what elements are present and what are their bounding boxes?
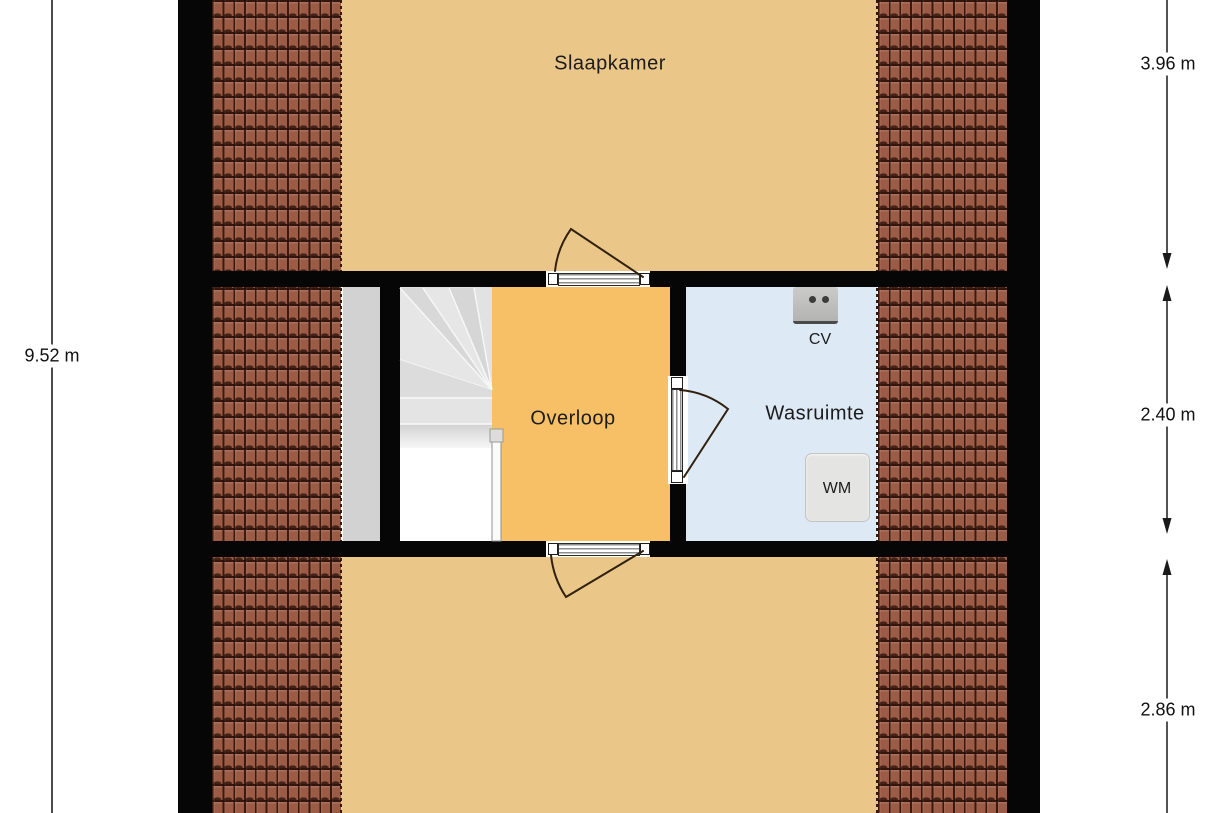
door-jamb (548, 273, 558, 285)
arrowhead-down-icon (1163, 253, 1172, 269)
door-jamb (640, 273, 650, 285)
door-leaf-bottom (558, 543, 640, 556)
room-label-overloop: Overloop (530, 408, 615, 431)
room-label-wasruimte: Wasruimte (765, 403, 864, 426)
dimension-label-bottom-section: 2.86 m (1135, 699, 1200, 722)
dimension-label-top-section: 3.96 m (1135, 53, 1200, 76)
arrowhead-down-icon (1163, 518, 1172, 534)
arrowhead-up-icon (1163, 559, 1172, 575)
door-jamb (671, 471, 683, 483)
landing-strip (343, 287, 380, 541)
room-bottom (341, 557, 878, 813)
stairs-area (400, 287, 492, 541)
cv-dot (809, 296, 816, 303)
door-leaf-wasruimte (671, 389, 683, 471)
door-leaf-slaapkamer (558, 273, 640, 286)
cv-dot (822, 296, 829, 303)
door-jamb (548, 543, 558, 555)
floorplan-canvas: Slaapkamer Overloop Wasruimte CV WM 9.52… (0, 0, 1220, 813)
roof-boundary-left (340, 0, 342, 813)
wall-outer-right (1007, 0, 1040, 813)
roof-tiles-left (212, 0, 341, 813)
door-jamb (640, 543, 650, 555)
arrowhead-up-icon (1163, 285, 1172, 301)
door-jamb (671, 377, 683, 389)
wall-outer-left (178, 0, 212, 813)
cv-boiler-unit (793, 287, 838, 324)
wall-stairwell (380, 287, 400, 541)
fixture-label-cv: CV (809, 331, 831, 349)
room-label-slaapkamer: Slaapkamer (554, 53, 666, 76)
room-slaapkamer (341, 0, 878, 271)
dimension-label-middle-section: 2.40 m (1135, 404, 1200, 427)
roof-tiles-right (878, 0, 1007, 813)
roof-boundary-right (876, 0, 878, 813)
fixture-label-wm: WM (823, 480, 851, 498)
dimension-label-total-height: 9.52 m (19, 345, 84, 368)
